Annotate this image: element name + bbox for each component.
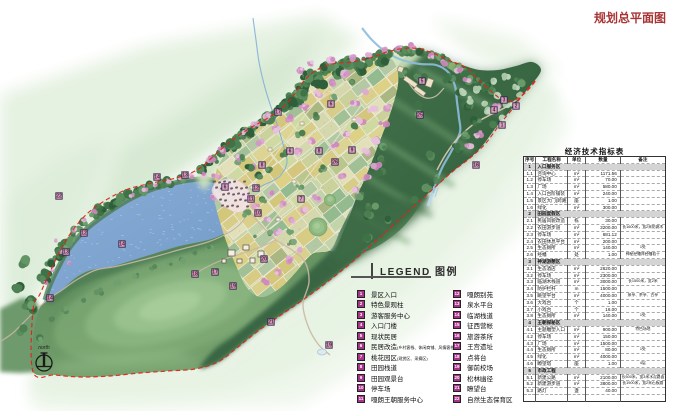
svg-text:16: 16 — [473, 163, 479, 169]
svg-text:2: 2 — [515, 104, 518, 110]
svg-text:13: 13 — [182, 173, 188, 179]
svg-text:14: 14 — [154, 175, 160, 181]
svg-text:19: 19 — [230, 284, 236, 290]
svg-text:14: 14 — [119, 242, 125, 248]
svg-text:6: 6 — [330, 102, 333, 108]
svg-text:8: 8 — [318, 149, 321, 155]
svg-text:26: 26 — [332, 160, 338, 166]
svg-text:12: 12 — [253, 186, 259, 192]
svg-text:14: 14 — [47, 296, 53, 302]
svg-text:4: 4 — [493, 108, 496, 114]
svg-text:25: 25 — [417, 113, 423, 119]
svg-text:17: 17 — [275, 110, 281, 116]
svg-text:19: 19 — [326, 343, 332, 349]
svg-text:1: 1 — [501, 123, 504, 129]
svg-text:12: 12 — [81, 231, 87, 237]
svg-text:20: 20 — [261, 257, 267, 263]
svg-text:18: 18 — [192, 272, 198, 278]
svg-text:6: 6 — [289, 149, 292, 155]
svg-text:21: 21 — [268, 320, 274, 326]
svg-text:9: 9 — [351, 148, 354, 154]
svg-text:13: 13 — [63, 250, 69, 256]
svg-text:22: 22 — [56, 194, 62, 200]
svg-text:north: north — [38, 345, 50, 351]
svg-text:3: 3 — [503, 98, 506, 104]
svg-text:8: 8 — [261, 163, 264, 169]
svg-text:5: 5 — [421, 79, 424, 85]
svg-text:6: 6 — [224, 185, 227, 191]
svg-text:17: 17 — [212, 270, 218, 276]
svg-text:10: 10 — [255, 211, 261, 217]
svg-text:11: 11 — [248, 197, 254, 203]
svg-text:7: 7 — [300, 197, 303, 203]
